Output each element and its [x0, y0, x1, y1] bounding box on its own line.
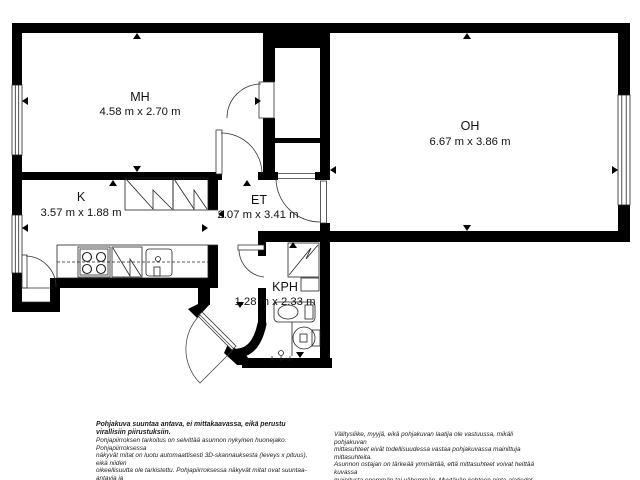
window-mh-icon	[12, 85, 22, 155]
measure-triangle-icon	[612, 166, 618, 174]
washing-machine-icon	[288, 243, 319, 277]
room-dims-mh: 4.58 m x 2.70 m	[100, 106, 181, 118]
bathroom-cabinet-icon	[301, 278, 319, 291]
toilet-icon	[293, 327, 320, 349]
window-oh-icon	[618, 95, 630, 205]
room-label-kph: KPH	[272, 280, 298, 294]
disclaimer-left-column: Pohjapiirroksen tarkoitus on selvittää a…	[96, 437, 314, 480]
room-dims-kph: 1.28 m x 2.33 m	[235, 296, 316, 308]
door-mh-closet-icon	[227, 82, 274, 118]
room-label-et: ET	[251, 193, 267, 207]
measure-triangle-icon	[463, 225, 471, 231]
disclaimer-headline: Pohjakuva suuntaa antava, ei mittakaavas…	[96, 421, 311, 437]
measure-triangle-icon	[22, 97, 28, 105]
door-et-mh-icon	[216, 130, 262, 174]
wardrobe-icon	[125, 178, 208, 210]
measure-triangle-icon	[243, 180, 251, 186]
measure-triangle-icon	[22, 224, 28, 232]
room-label-oh: OH	[461, 119, 480, 133]
room-label-k: K	[77, 190, 86, 204]
door-et-kph-icon	[238, 245, 264, 277]
disclaimer-right-column: Välitysliike, myyjä, eikä pohjakuvan laa…	[334, 431, 546, 480]
floor-plan-page: MH 4.58 m x 2.70 m K 3.57 m x 1.88 m ET …	[0, 0, 640, 480]
measure-triangle-icon	[202, 224, 208, 232]
room-label-mh: MH	[130, 90, 149, 104]
measure-triangle-icon	[109, 180, 117, 186]
floor-plan-drawing: MH 4.58 m x 2.70 m K 3.57 m x 1.88 m ET …	[0, 0, 640, 412]
room-dims-k: 3.57 m x 1.88 m	[41, 207, 122, 219]
measure-triangle-icon	[330, 166, 336, 174]
room-dims-oh: 6.67 m x 3.86 m	[430, 136, 511, 148]
room-dims-et: 2.07 m x 3.41 m	[218, 209, 299, 221]
measure-triangle-icon	[463, 33, 471, 39]
measure-triangle-icon	[133, 33, 141, 39]
opening-k-et-icon	[208, 210, 218, 245]
measure-triangle-icon	[296, 352, 304, 358]
measure-triangle-icon	[133, 166, 141, 172]
window-k-icon	[12, 215, 22, 273]
